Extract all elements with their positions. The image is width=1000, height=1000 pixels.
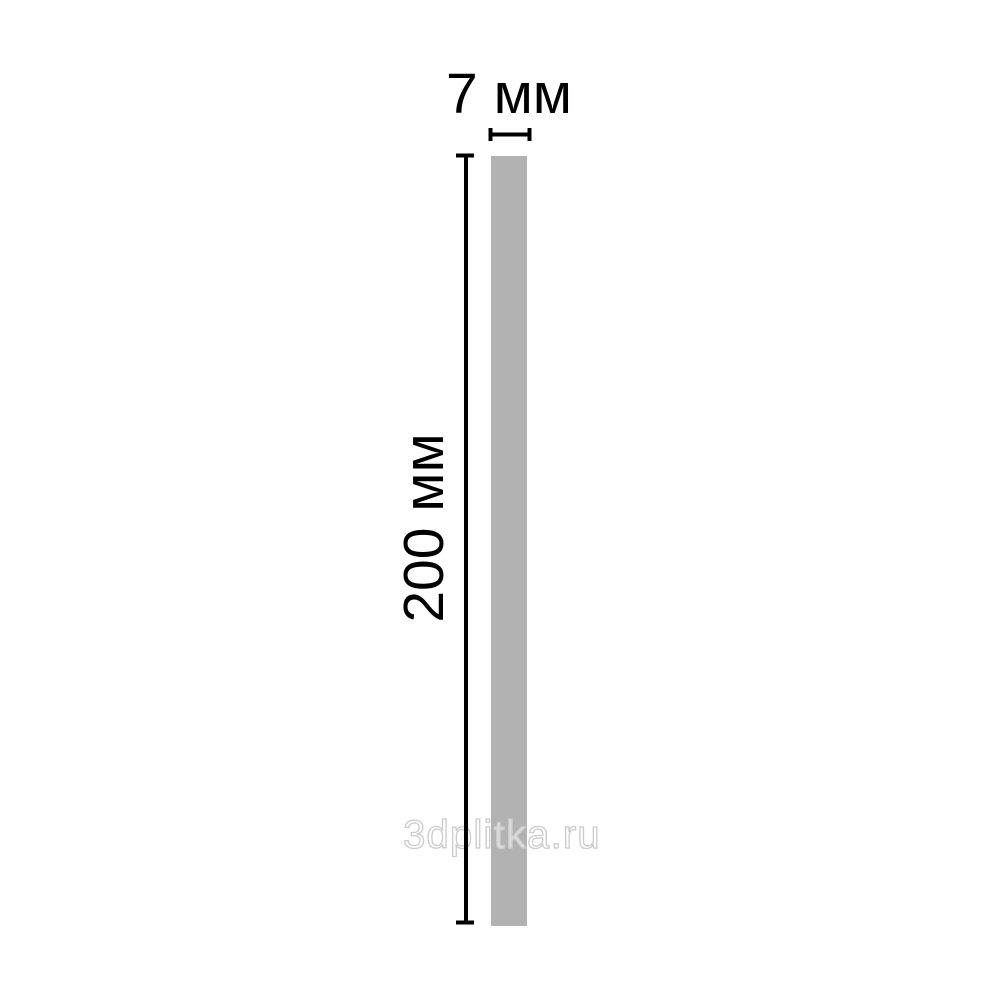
svg-text:7 мм: 7 мм	[446, 62, 572, 126]
svg-text:3dplitka.ru: 3dplitka.ru	[403, 813, 601, 857]
svg-text:200 мм: 200 мм	[392, 433, 456, 622]
